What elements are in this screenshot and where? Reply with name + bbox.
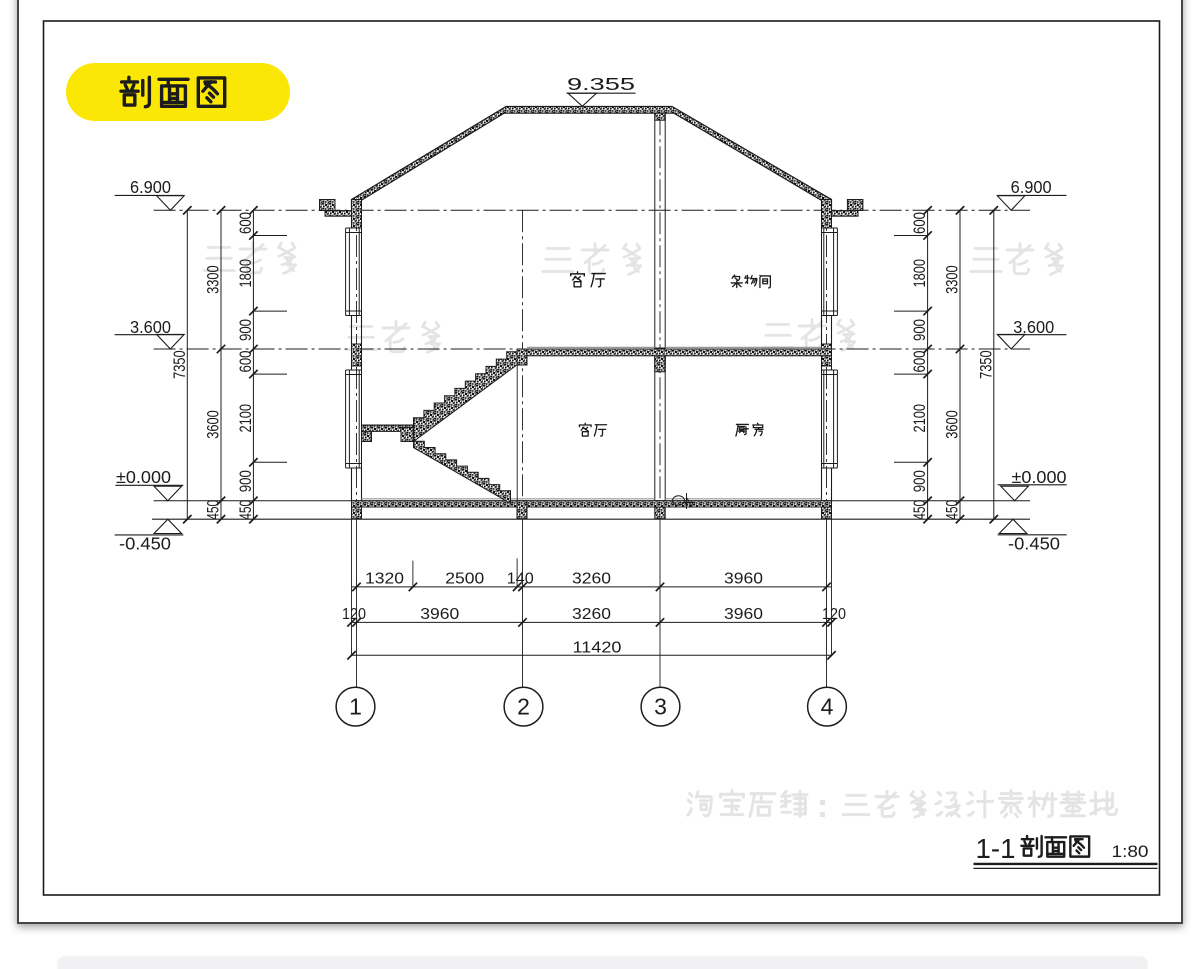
- svg-text:3260: 3260: [572, 606, 611, 623]
- svg-text:±0.000: ±0.000: [1012, 467, 1067, 487]
- svg-text:1-1: 1-1: [976, 833, 1016, 864]
- svg-text:900: 900: [911, 470, 929, 492]
- svg-text:7350: 7350: [171, 350, 189, 379]
- svg-text:-0.450: -0.450: [119, 534, 171, 554]
- svg-text:900: 900: [911, 319, 929, 341]
- svg-text:3: 3: [654, 694, 667, 720]
- svg-text:4: 4: [821, 694, 834, 720]
- svg-text:3.600: 3.600: [130, 317, 171, 337]
- svg-text:2100: 2100: [911, 404, 929, 433]
- svg-text:900: 900: [237, 319, 255, 341]
- svg-text:2100: 2100: [237, 404, 255, 433]
- svg-text:6.900: 6.900: [1011, 177, 1052, 197]
- svg-text:3600: 3600: [944, 410, 962, 439]
- svg-text:1800: 1800: [237, 259, 255, 288]
- svg-text:11420: 11420: [573, 640, 622, 657]
- svg-text:450: 450: [944, 500, 962, 520]
- svg-text:450: 450: [911, 500, 929, 520]
- svg-text:450: 450: [205, 500, 223, 520]
- svg-text:120: 120: [342, 606, 366, 623]
- svg-text:1800: 1800: [911, 259, 929, 288]
- svg-text:600: 600: [237, 351, 255, 373]
- svg-text:2500: 2500: [445, 571, 484, 588]
- svg-text:3.600: 3.600: [1013, 317, 1054, 337]
- svg-text:3960: 3960: [724, 606, 763, 623]
- svg-text:3600: 3600: [205, 410, 223, 439]
- svg-text:3260: 3260: [572, 571, 611, 588]
- svg-text:600: 600: [237, 212, 255, 234]
- svg-text:1:80: 1:80: [1112, 842, 1149, 861]
- svg-text:2: 2: [517, 694, 530, 720]
- svg-text:9.355: 9.355: [567, 74, 635, 94]
- svg-text:1320: 1320: [365, 571, 404, 588]
- svg-text:600: 600: [911, 212, 929, 234]
- svg-text:450: 450: [237, 500, 255, 520]
- svg-text:-0.450: -0.450: [1008, 534, 1060, 554]
- svg-text:1: 1: [349, 694, 362, 720]
- svg-text:120: 120: [822, 606, 846, 623]
- svg-text:140: 140: [507, 571, 534, 588]
- svg-text:7350: 7350: [977, 350, 995, 379]
- svg-text:3960: 3960: [724, 571, 763, 588]
- svg-text:900: 900: [237, 470, 255, 492]
- svg-text:±0.000: ±0.000: [116, 467, 171, 487]
- svg-text:6.900: 6.900: [130, 177, 171, 197]
- svg-text:3300: 3300: [205, 265, 223, 294]
- svg-text:600: 600: [911, 351, 929, 373]
- svg-text:3960: 3960: [420, 606, 459, 623]
- svg-text:3300: 3300: [944, 265, 962, 294]
